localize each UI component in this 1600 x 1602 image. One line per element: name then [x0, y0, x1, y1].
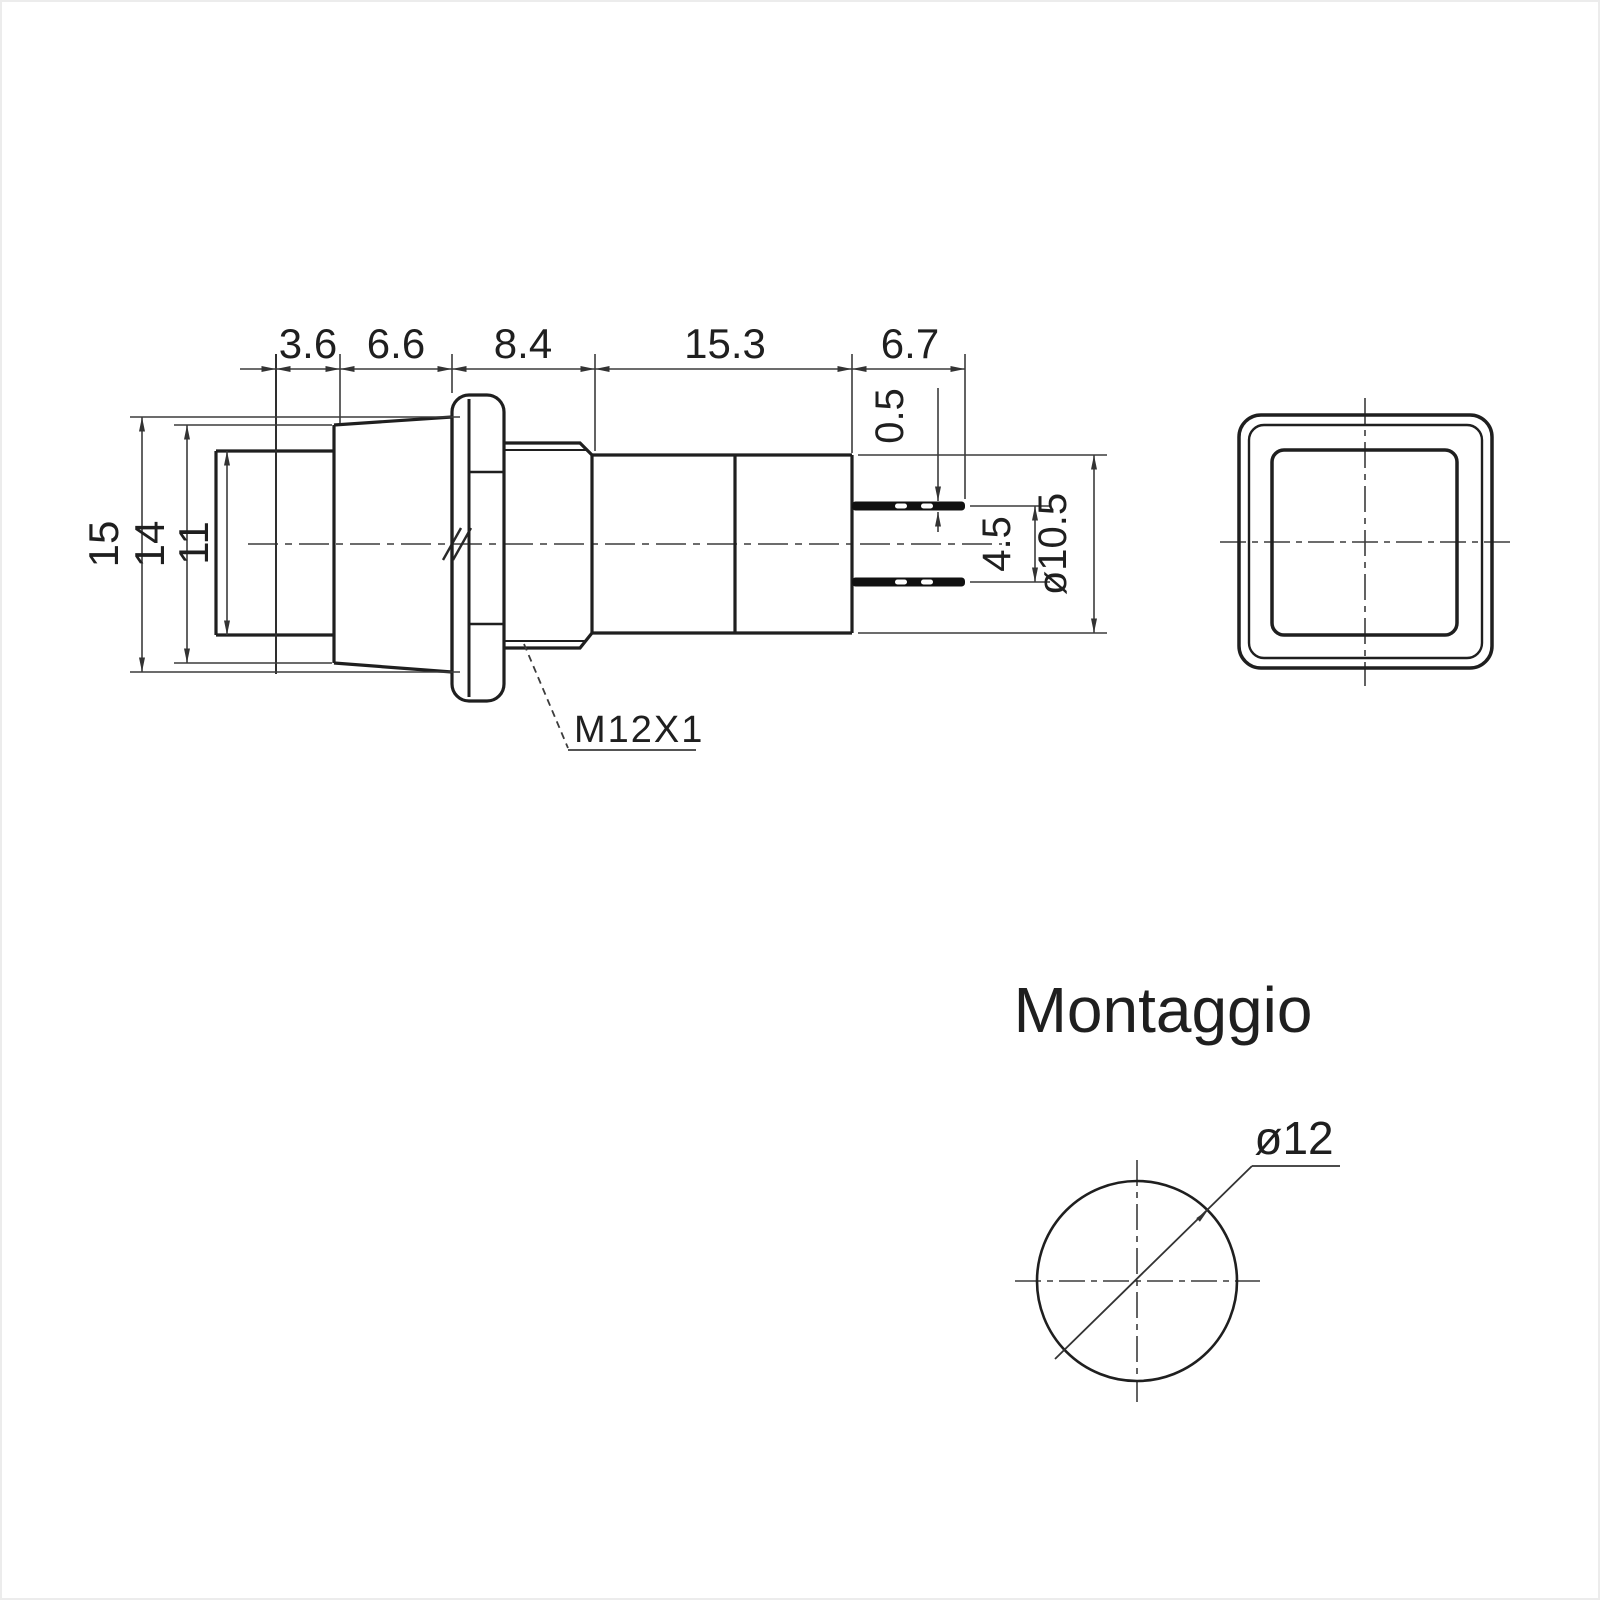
dim-label-15-3: 15.3 — [684, 320, 766, 367]
terminal-top — [852, 502, 965, 511]
terminal-bottom — [852, 578, 965, 587]
dim-label-dia-10-5: ø10.5 — [1031, 493, 1075, 595]
mounting-dia-leader — [1055, 1166, 1340, 1359]
mounting-hole-diameter-label: ø12 — [1254, 1112, 1333, 1164]
dim-label-11: 11 — [170, 521, 217, 565]
terminal-bottom-hole-2 — [921, 580, 933, 585]
top-dimension-chain — [240, 354, 965, 499]
terminal-bottom-hole-1 — [895, 580, 907, 585]
dim-label-8-4: 8.4 — [494, 320, 552, 367]
dim-label-14: 14 — [126, 521, 173, 568]
terminal-top-hole-1 — [895, 504, 907, 509]
front-view — [1220, 398, 1512, 686]
technical-drawing: 3.6 6.6 8.4 15.3 6.7 15 14 11 0.5 — [2, 2, 1600, 1602]
dim-label-15: 15 — [80, 521, 127, 568]
mounting-title: Montaggio — [1014, 974, 1313, 1046]
side-view: 3.6 6.6 8.4 15.3 6.7 15 14 11 0.5 — [80, 320, 1107, 751]
thread-callout: M12X1 — [524, 644, 704, 751]
mounting-view: Montaggio ø12 — [1014, 974, 1340, 1402]
dim-label-6-7: 6.7 — [881, 320, 939, 367]
technical-drawing-page: 3.6 6.6 8.4 15.3 6.7 15 14 11 0.5 — [0, 0, 1600, 1600]
terminal-top-hole-2 — [921, 504, 933, 509]
dim-label-0-5: 0.5 — [868, 388, 912, 444]
dim-label-4-5: 4.5 — [975, 516, 1019, 572]
dim-label-3-6: 3.6 — [279, 320, 337, 367]
thread-spec-label: M12X1 — [574, 709, 704, 751]
dim-label-6-6: 6.6 — [367, 320, 425, 367]
thread-bushing — [504, 443, 592, 648]
